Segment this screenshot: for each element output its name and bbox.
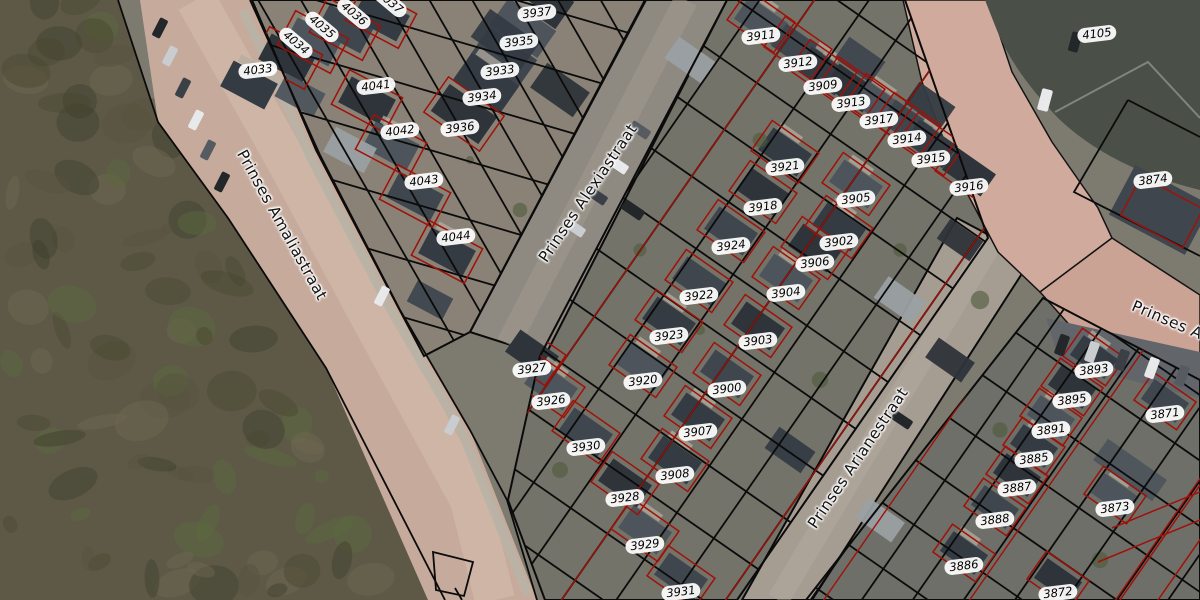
cadastral-map-view[interactable]: 4033403440354036403740414042404340443937… — [0, 0, 1200, 600]
map-canvas[interactable] — [0, 0, 1200, 600]
